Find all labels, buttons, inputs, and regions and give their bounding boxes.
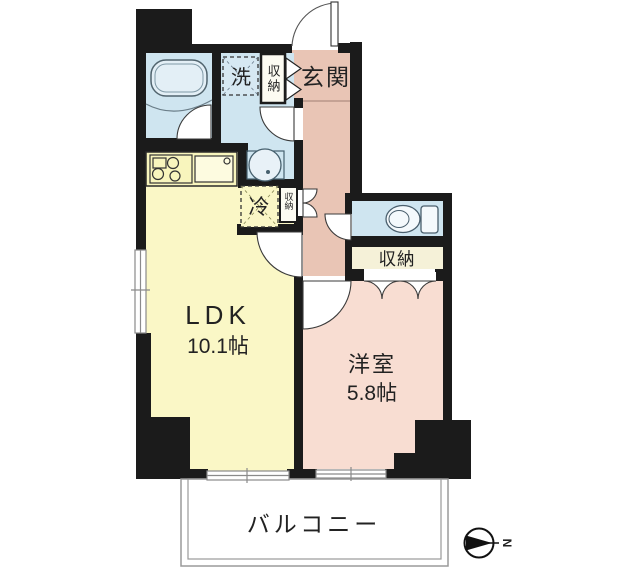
kitchen-sink-icon: [195, 156, 233, 182]
kitchen-closet-label: 収納: [284, 191, 294, 211]
wall-hall-left-1: [294, 98, 303, 108]
kitchen-counter: [146, 152, 237, 186]
wall-western-window-right: [385, 469, 421, 479]
wall-top: [140, 44, 292, 53]
pillar-bottom-right-upper: [415, 420, 471, 458]
laundry-label: 洗: [231, 66, 251, 89]
western-room-size: 5.8帖: [347, 382, 397, 405]
ldk-size: 10.1帖: [187, 335, 249, 358]
wall-closet-left: [345, 247, 352, 269]
wall-hall-left-2: [294, 140, 303, 190]
wall-ldk-western-divider: [294, 276, 303, 481]
entrance-closet-label: 収納: [266, 64, 281, 94]
wall-toilet-top: [345, 193, 452, 201]
wall-left-lower: [136, 333, 151, 419]
wall-western-top-1: [345, 269, 364, 281]
floorplan-drawing: N 玄関 洗 収納 冷 収納 収納 LDK 10.1帖 洋室 5.8帖 バルコニ…: [0, 0, 640, 569]
wall-bath-bottom: [140, 138, 221, 152]
balcony-label: バルコニー: [247, 511, 382, 537]
wall-toilet-left-1: [345, 201, 352, 214]
hall-closet-label: 収納: [379, 249, 416, 269]
compass-north-label: N: [500, 539, 514, 548]
toilet-icon: [386, 206, 438, 234]
wall-toilet-bottom: [345, 236, 444, 247]
wall-right: [443, 193, 452, 447]
wall-western-window-left: [294, 469, 317, 479]
floorplan: N 玄関 洗 収納 冷 収納 収納 LDK 10.1帖 洋室 5.8帖 バルコニ…: [0, 0, 640, 569]
ldk-name: LDK: [185, 300, 251, 330]
entrance-label: 玄関: [301, 64, 351, 90]
wall-bottom-left-block: [136, 417, 190, 479]
compass: N: [465, 529, 515, 558]
western-room-name: 洋室: [348, 352, 396, 377]
wall-entrance-right: [350, 42, 362, 201]
fridge-label: 冷: [249, 196, 270, 219]
hallway-floor: [303, 99, 350, 276]
wall-bath-wash-divider: [212, 53, 221, 150]
entrance-door: [292, 2, 338, 46]
